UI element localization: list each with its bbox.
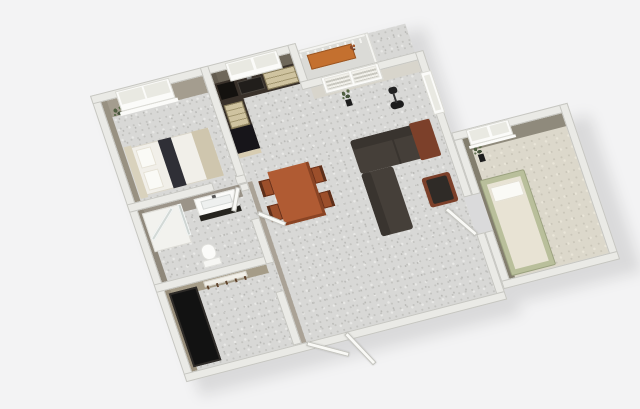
- floor-plan-viewport: [0, 0, 640, 409]
